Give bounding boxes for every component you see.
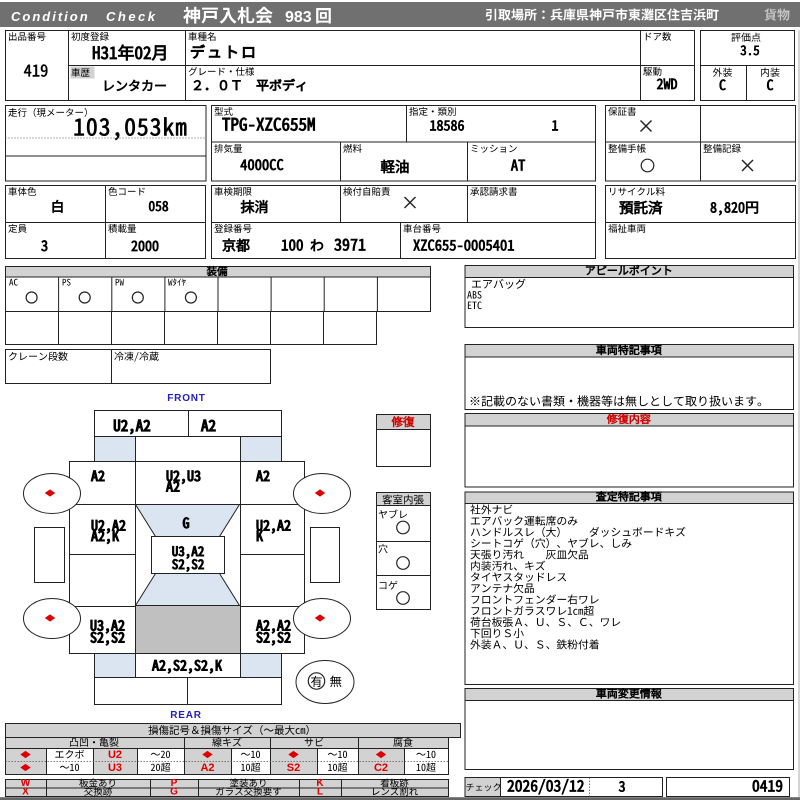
svg-text:X: X (22, 787, 29, 798)
svg-text:A2: A2 (200, 762, 214, 774)
svg-text:U2: U2 (108, 749, 122, 761)
svg-text:FRONT: FRONT (167, 393, 205, 404)
svg-text:G: G (170, 787, 178, 798)
svg-text:L: L (317, 787, 323, 798)
svg-text:Condition: Condition (11, 9, 90, 24)
svg-text:REAR: REAR (170, 710, 202, 721)
svg-text:983: 983 (285, 9, 312, 26)
svg-text:Check: Check (106, 9, 158, 24)
svg-text:S2: S2 (287, 762, 300, 774)
svg-text:U3: U3 (108, 762, 122, 774)
svg-text:C2: C2 (374, 762, 388, 774)
